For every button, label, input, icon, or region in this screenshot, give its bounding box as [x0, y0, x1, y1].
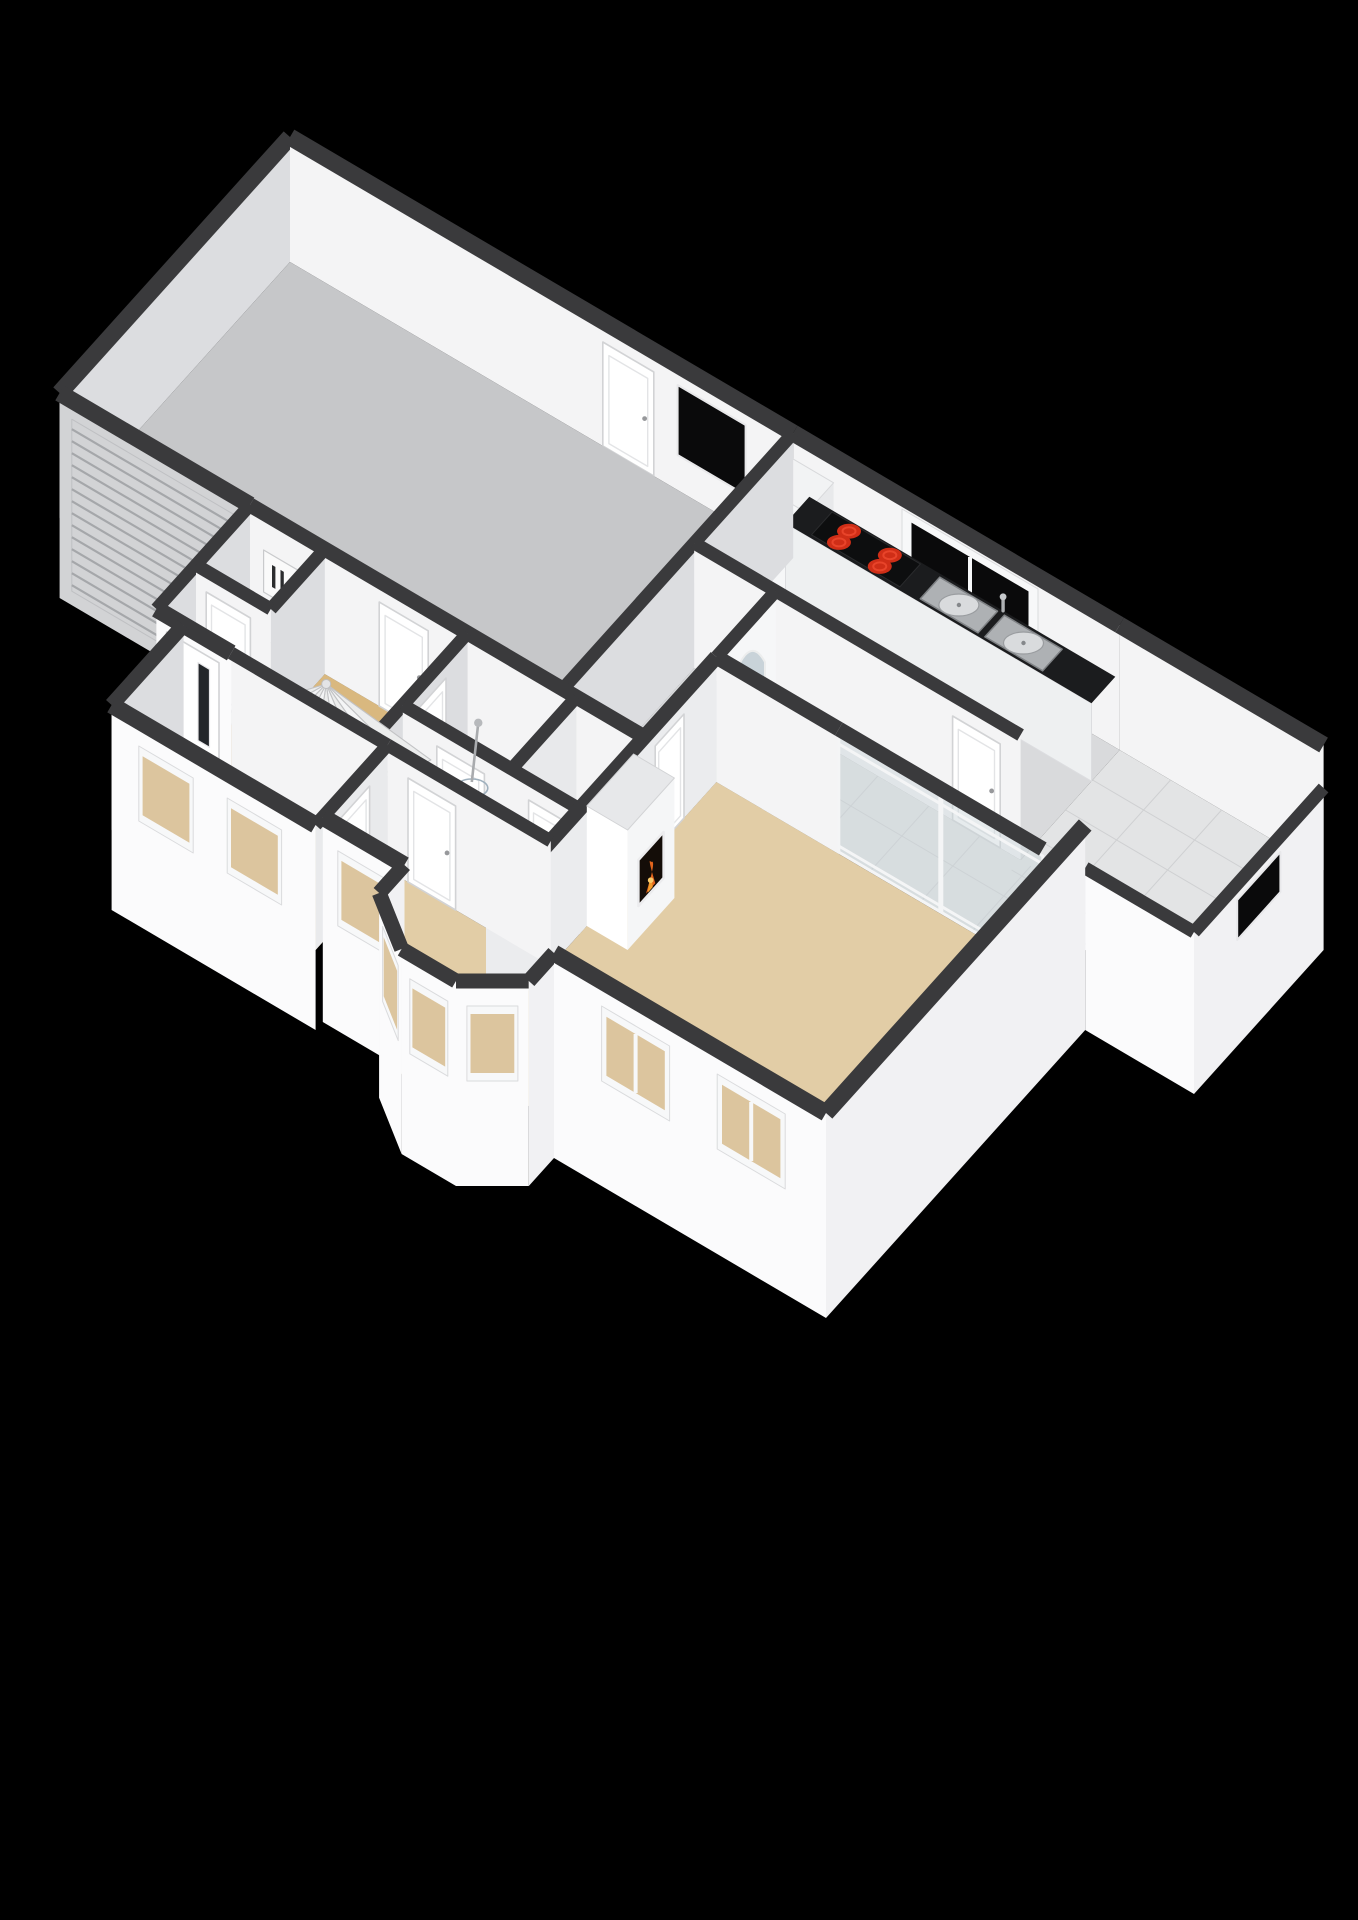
wall-bay-e [529, 953, 554, 1186]
wall-bay-front [402, 949, 456, 1186]
wall-bay-se [456, 981, 529, 1186]
3d-floorplan-render [0, 0, 1358, 1920]
floorplan-stage [0, 0, 1358, 1920]
